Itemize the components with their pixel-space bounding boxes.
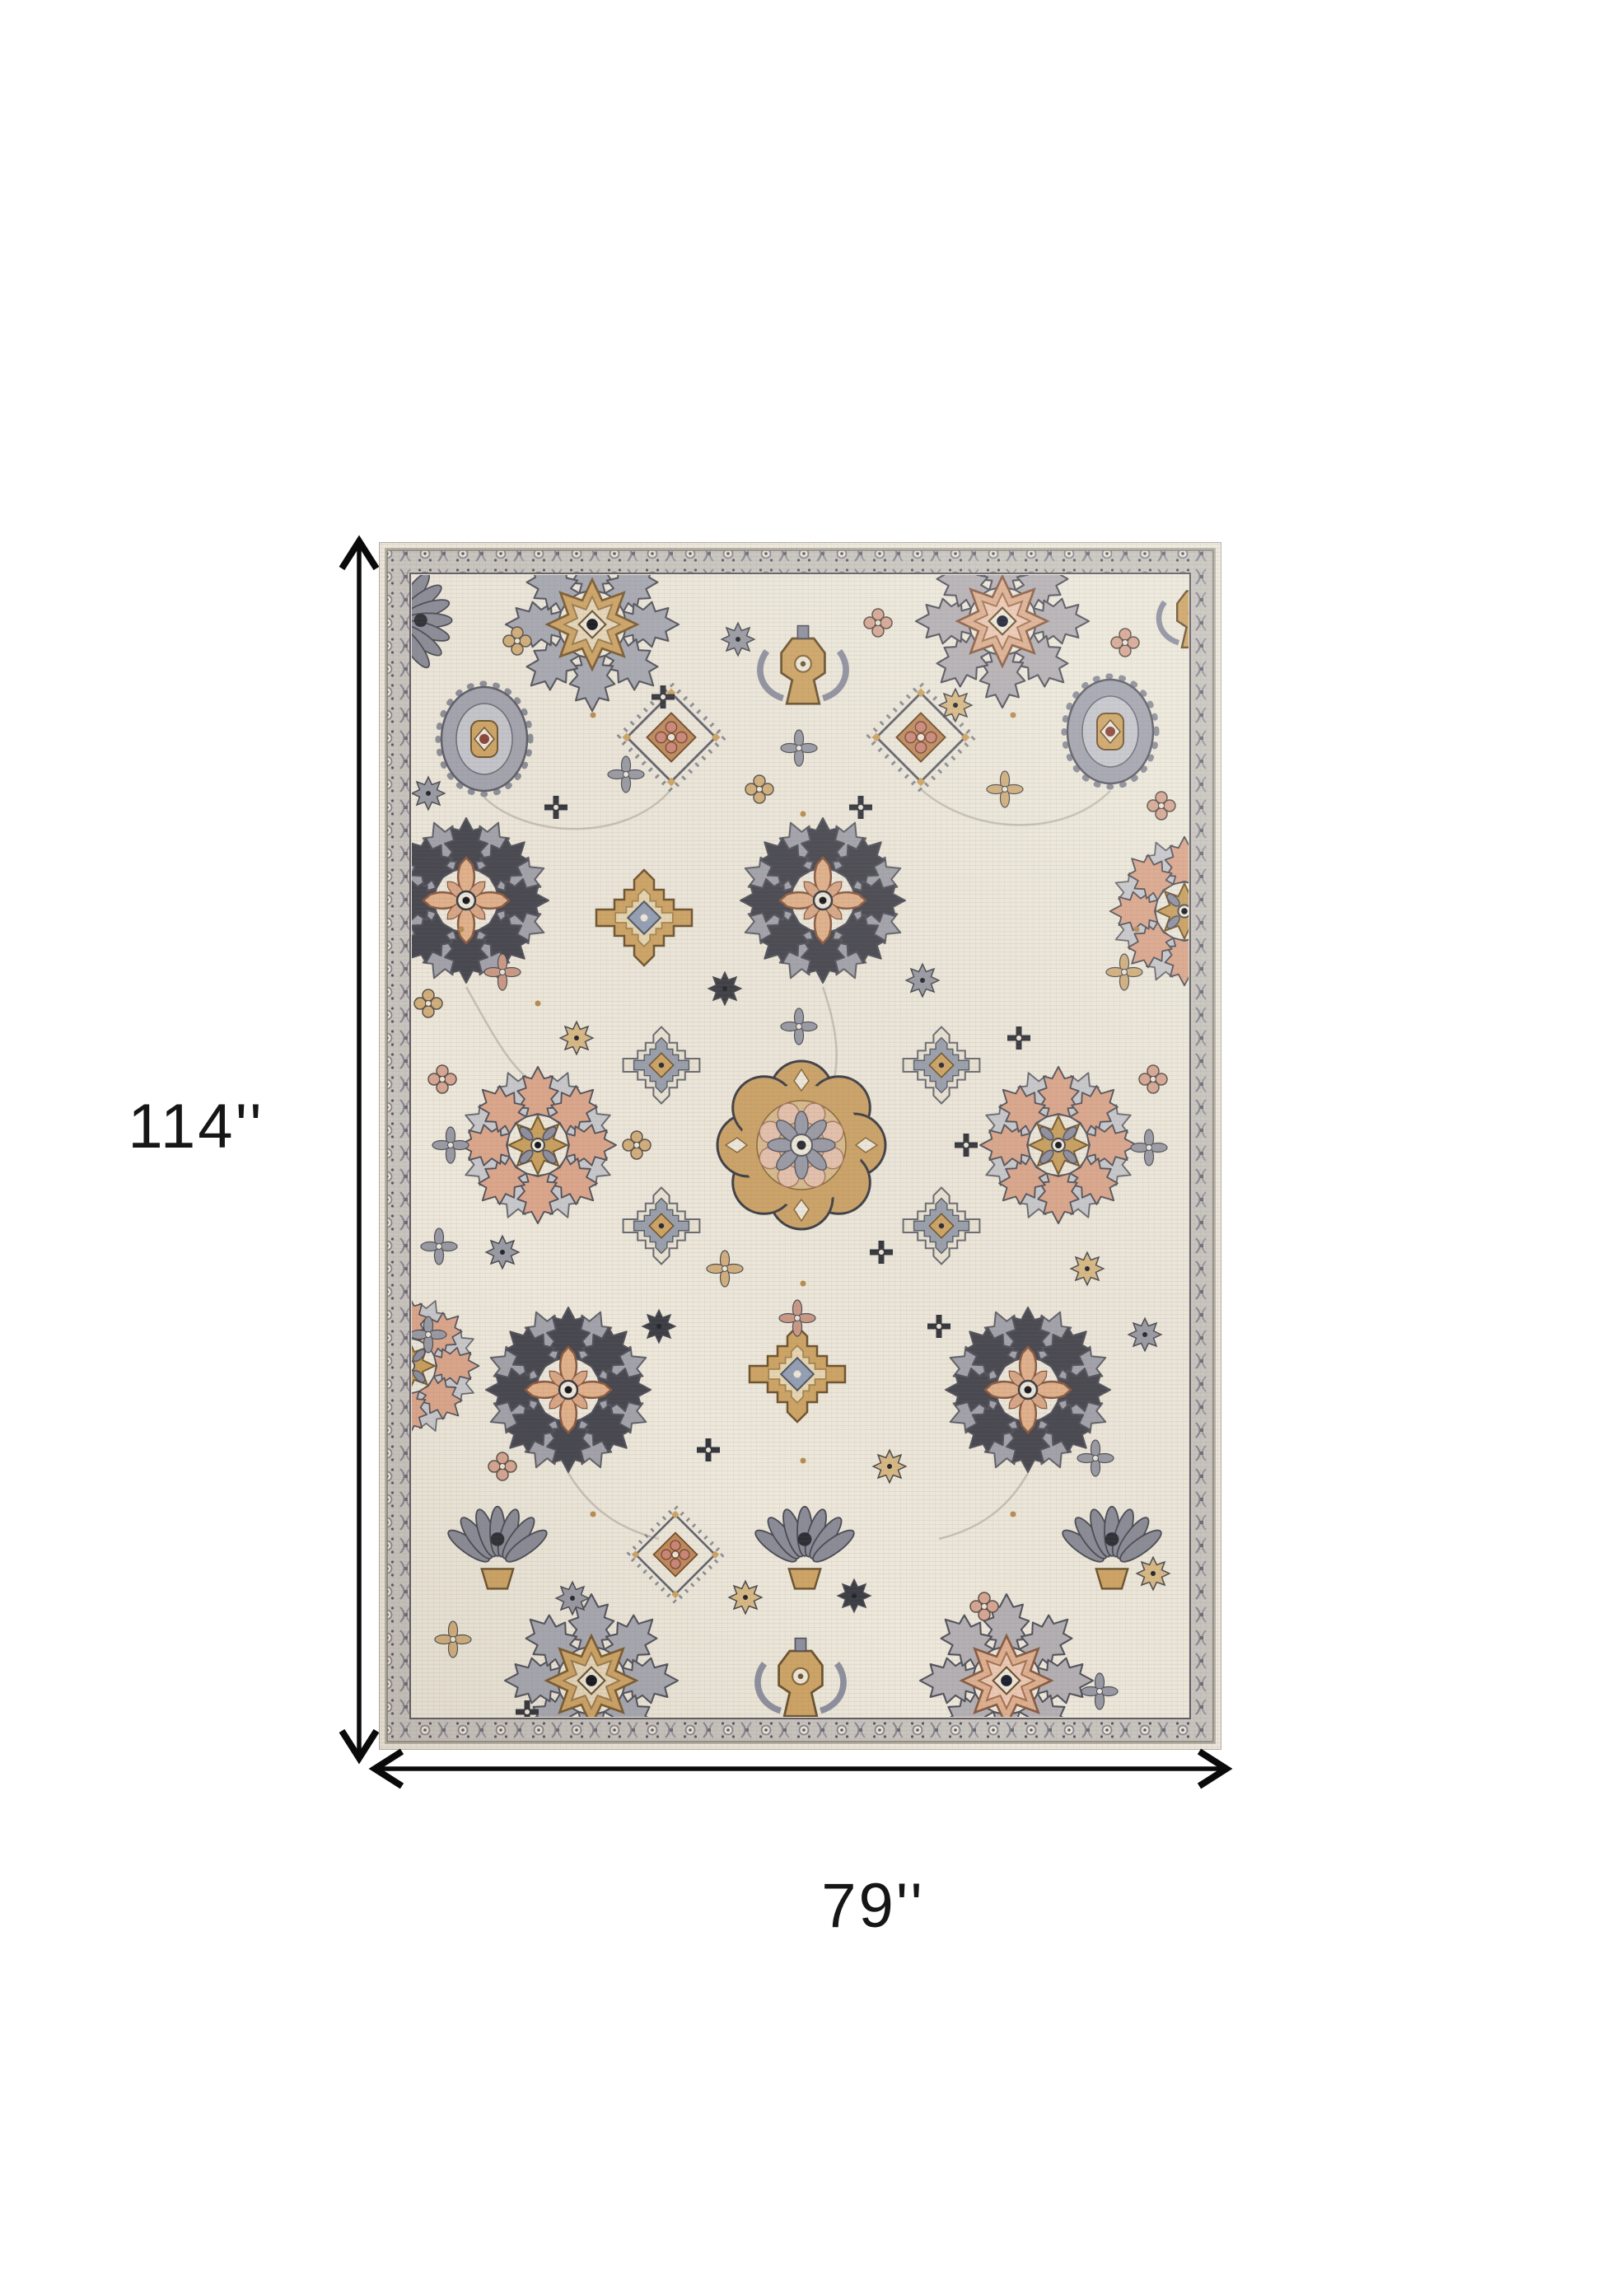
vertical-arrow-icon bbox=[336, 534, 382, 1766]
rug-pattern bbox=[379, 542, 1221, 1750]
page: 114'' 79'' bbox=[0, 0, 1602, 2296]
rug-image bbox=[379, 542, 1221, 1750]
height-dimension-label: 114'' bbox=[97, 1094, 295, 1160]
width-dimension-label: 79'' bbox=[774, 1873, 972, 1939]
horizontal-arrow-icon bbox=[367, 1747, 1234, 1791]
